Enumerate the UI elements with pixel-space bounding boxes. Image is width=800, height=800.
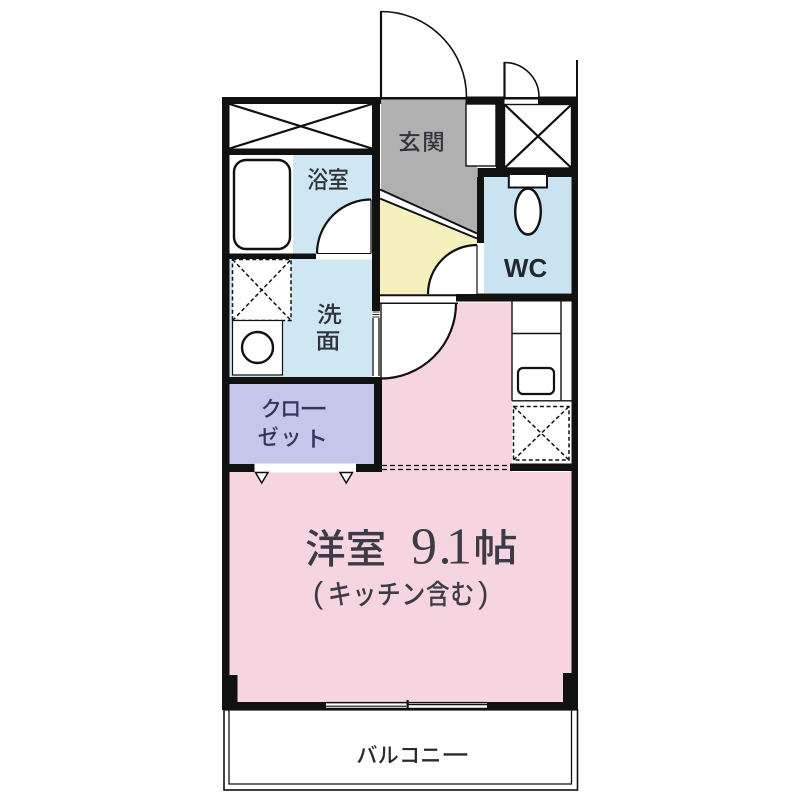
svg-text:WC: WC [504,253,548,283]
svg-text:(: ( [313,575,324,610]
svg-text:): ) [478,575,488,610]
svg-text:9.1: 9.1 [411,519,474,576]
